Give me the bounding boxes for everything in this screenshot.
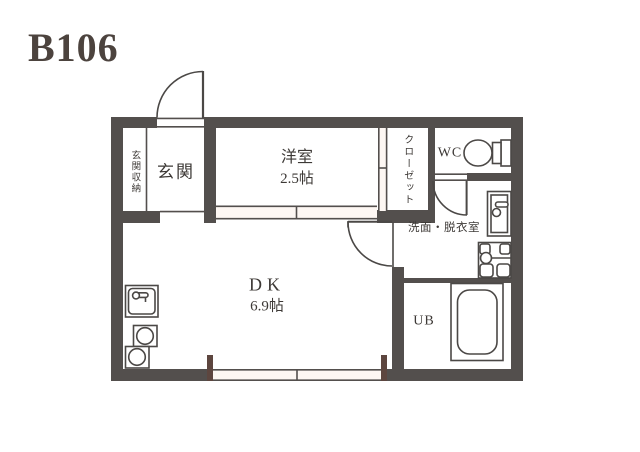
western-room-area: 2.5帖 — [280, 169, 314, 189]
western-room-name: 洋室 — [280, 147, 314, 169]
dk-area: 6.9帖 — [249, 297, 285, 317]
wc-door-threshold — [435, 174, 467, 180]
entrance-threshold — [157, 118, 204, 126]
wall-entrance-east — [204, 128, 216, 223]
label-entrance: 玄関 — [157, 162, 195, 185]
washroom-door — [348, 221, 393, 267]
bathtub-icon — [451, 284, 503, 361]
label-western-room: 洋室 2.5帖 — [280, 147, 314, 189]
sliding-door-western-room — [216, 206, 377, 218]
wall-bottom-left — [111, 369, 213, 381]
dk-name: DK — [249, 273, 285, 297]
entrance-door — [157, 71, 203, 118]
wall-entrance-bottom — [111, 211, 160, 223]
wc-door — [433, 181, 467, 215]
sliding-door-closet — [379, 128, 387, 211]
wall-right — [511, 117, 523, 381]
wall-closet-east — [428, 128, 435, 223]
wall-left — [111, 117, 123, 381]
washbasin-icon — [488, 192, 512, 237]
wall-wc-bottom — [467, 173, 511, 181]
label-closet: クローゼット — [400, 134, 414, 206]
unit-number: B106 — [28, 24, 119, 71]
label-washroom: 洗面・脱衣室 — [408, 221, 480, 237]
dk-window — [213, 369, 387, 380]
label-entrance-storage: 玄関収納 — [128, 150, 141, 194]
kitchen-sink-icon — [126, 286, 159, 318]
washing-machine-pan-icon — [479, 243, 512, 279]
toilet-icon — [464, 140, 511, 166]
wall-bottom-right — [387, 369, 523, 381]
stove-burners-icon — [126, 326, 158, 369]
window-post-right — [381, 355, 387, 381]
label-wc: WC — [438, 145, 463, 164]
window-post-left — [207, 355, 213, 381]
wall-top-right — [204, 117, 523, 128]
label-dining-kitchen: DK 6.9帖 — [249, 273, 285, 318]
label-unit-bath: UB — [413, 313, 434, 332]
floor-plan: B106 玄関収納 玄関 洋室 2.5帖 クローゼット WC 洗面・脱衣室 DK… — [0, 0, 640, 452]
